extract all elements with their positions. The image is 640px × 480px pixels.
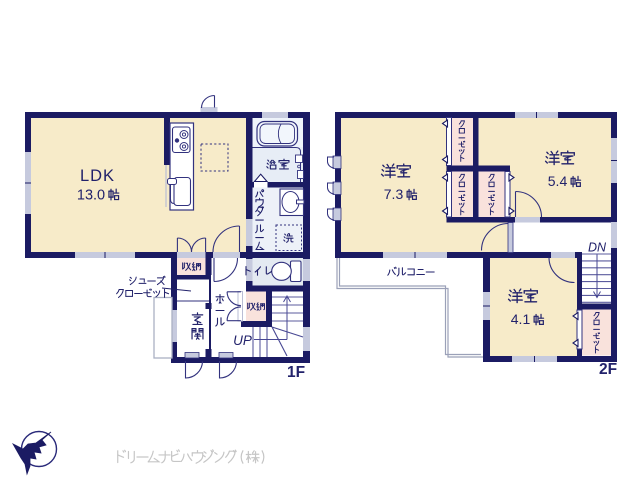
svg-text:13.0: 13.0 — [77, 188, 105, 204]
svg-text:5.4: 5.4 — [548, 173, 568, 189]
svg-text:UP: UP — [233, 333, 252, 348]
svg-text:LDK: LDK — [80, 167, 115, 185]
svg-text:DN: DN — [588, 241, 607, 255]
svg-text:7.3: 7.3 — [384, 186, 404, 202]
svg-text:4.1: 4.1 — [511, 311, 531, 327]
svg-text:1F: 1F — [287, 364, 305, 381]
svg-text:2F: 2F — [599, 361, 617, 378]
